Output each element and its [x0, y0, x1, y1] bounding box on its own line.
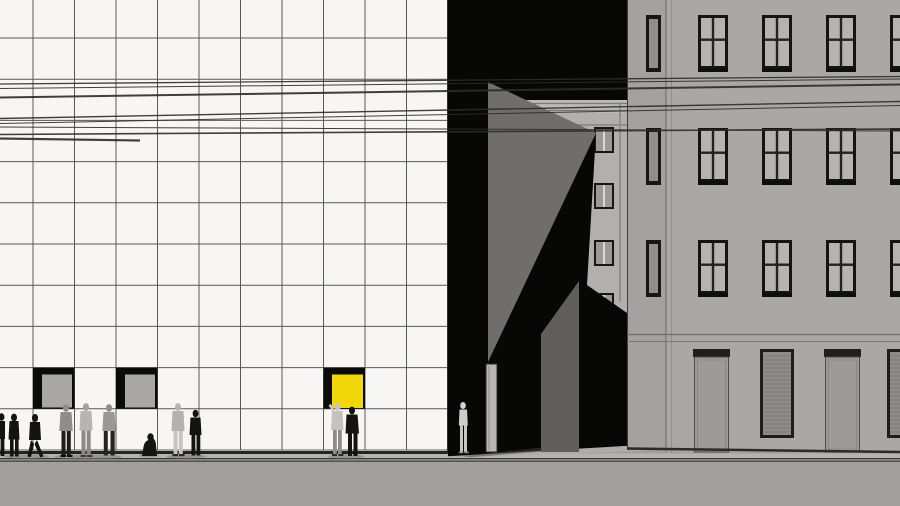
courtyard-window-3 — [594, 240, 614, 266]
architectural-rendering — [0, 0, 900, 506]
courtyard-window-2 — [594, 183, 614, 209]
drainpipe — [619, 102, 621, 302]
grey-window-1 — [33, 368, 75, 409]
yellow-window — [324, 368, 366, 409]
window-r3c1 — [698, 240, 728, 297]
curb-line-lower — [0, 461, 900, 462]
window-r1c3 — [826, 15, 856, 72]
window-r2c1 — [698, 128, 728, 185]
curb-line-light — [0, 459, 900, 460]
curb-line-dark — [0, 458, 900, 459]
door-slab — [486, 364, 497, 452]
side-window-3 — [646, 240, 661, 297]
shuttered-window-1 — [760, 349, 794, 438]
door-1 — [693, 349, 730, 452]
window-r1c1 — [698, 15, 728, 72]
window-r2c2 — [762, 128, 792, 185]
window-r3c3 — [826, 240, 856, 297]
door-2 — [824, 349, 861, 452]
window-r1c4 — [890, 15, 900, 72]
window-r3c2 — [762, 240, 792, 297]
side-window-1 — [646, 15, 661, 72]
passage — [448, 0, 642, 458]
window-r3c4 — [890, 240, 900, 297]
left-building — [0, 0, 449, 454]
scene-canvas — [0, 0, 900, 506]
grey-window-2 — [116, 368, 158, 409]
window-r2c4 — [890, 128, 900, 185]
side-window-2 — [646, 128, 661, 185]
shuttered-window-2 — [887, 349, 900, 438]
road — [0, 462, 900, 506]
window-r2c3 — [826, 128, 856, 185]
window-r1c2 — [762, 15, 792, 72]
right-building — [627, 0, 900, 452]
